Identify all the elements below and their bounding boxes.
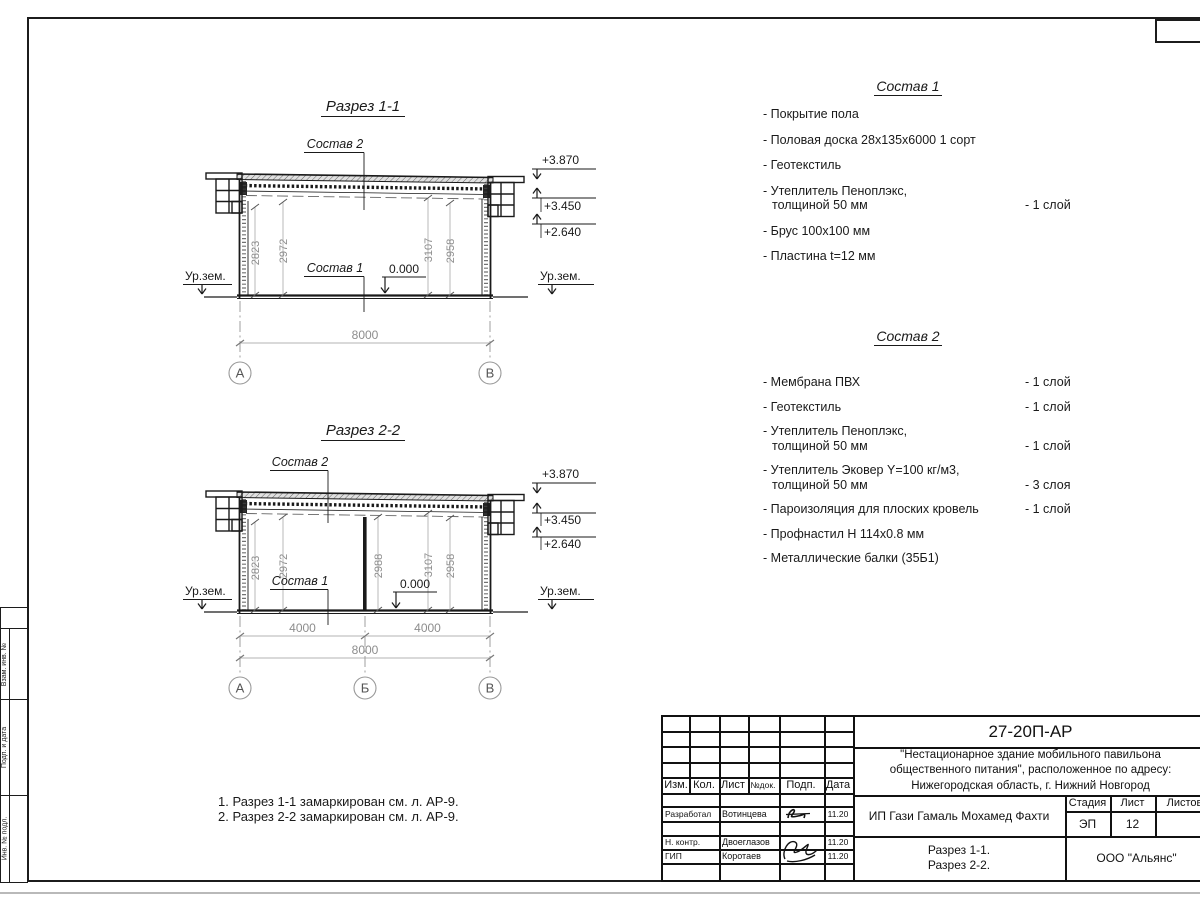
- left-strip-cell-vzam: Взам. инв. №: [0, 628, 28, 701]
- list-item: - Геотекстиль - 1 слой: [763, 400, 1123, 415]
- left-strip-divider: Взам. инв. №: [1, 629, 10, 700]
- elevation-arrow-up: [533, 188, 541, 198]
- paper-bottom-edge: [0, 892, 1200, 894]
- list-item: - Утеплитель Эковер Y=100 кг/м3,толщиной…: [763, 463, 1123, 492]
- axis-letter: Б: [361, 681, 370, 696]
- layer-count: - 1 слой: [1025, 439, 1071, 454]
- span-dim-value: 8000: [352, 643, 379, 657]
- col-header-podp: Подп.: [786, 779, 815, 791]
- signature-scribble: [782, 806, 824, 821]
- staff-name: Коротаев: [722, 851, 761, 861]
- list-item: - Пароизоляция для плоских кровель - 1 с…: [763, 502, 1123, 517]
- drawing-sheet: { "sheet": { "left_strip": { "cells": ["…: [0, 0, 1200, 900]
- roof-dotted-band: [240, 186, 490, 190]
- sostav2-label: Состав 2: [272, 455, 328, 469]
- list-item: - Половая доска 28х135х6000 1 сорт: [763, 133, 1123, 148]
- list-item: - Геотекстиль: [763, 158, 1123, 173]
- dim-value: 2988: [373, 554, 385, 578]
- sostav1-label: Состав 1: [272, 574, 328, 588]
- dim-value: 2958: [445, 554, 457, 578]
- staff-date: 11.20: [828, 837, 849, 847]
- zero-level-label: 0.000: [400, 577, 430, 591]
- elevation-arrow-up: [533, 527, 541, 537]
- composition1-title: Состав 1: [763, 78, 1053, 96]
- title-block: Изм. Кол. Лист №док. Подп. Дата Разработ…: [661, 715, 1200, 882]
- client-name: ИП Гази Гамаль Мохамед Фахти: [853, 795, 1065, 836]
- list-item: - Металлические балки (35Б1): [763, 551, 1123, 566]
- col-header-data: Дата: [826, 779, 850, 791]
- list-item: - Профнастил Н 114х0.8 мм: [763, 527, 1123, 542]
- sheet-background: Взам. инв. № Подп. и дата Инв. № подл. Р…: [0, 0, 1200, 900]
- elevation-arrow-down: [533, 169, 541, 179]
- list-item: - Покрытие пола: [763, 107, 1123, 122]
- axis-letter: А: [236, 366, 245, 381]
- ground-level-label-left: Ур.зем.: [185, 269, 226, 283]
- roof-dotted-band: [240, 504, 490, 508]
- span-dim-value: 8000: [352, 328, 379, 342]
- ground-level-label-right: Ур.зем.: [540, 269, 581, 283]
- layer-count: - 3 слоя: [1025, 478, 1070, 493]
- elevation-label: +3.450: [544, 513, 581, 527]
- signature-scribble: [777, 833, 825, 865]
- eave-bracket-right: [488, 495, 524, 535]
- col-header-sheets-total: Листов: [1167, 797, 1200, 809]
- left-strip-divider: Инв. № подл.: [1, 796, 10, 882]
- note-line: 2. Разрез 2-2 замаркирован см. л. АР-9.: [218, 810, 459, 825]
- col-header-stadia: Стадия: [1069, 797, 1107, 809]
- project-description: "Нестационарное здание мобильного павиль…: [853, 747, 1200, 795]
- ground-level-arrow-right: [548, 600, 556, 610]
- ground-level-arrow-right: [548, 285, 556, 295]
- ground-level-label-right: Ур.зем.: [540, 584, 581, 598]
- section-1-1-drawing: Разрез 1-1: [180, 80, 600, 400]
- layer-count: - 1 слой: [1025, 400, 1071, 415]
- ground-level-label-left: Ур.зем.: [185, 584, 226, 598]
- organization-name: ООО "Альянс": [1065, 836, 1200, 880]
- list-item: - Брус 100х100 мм: [763, 224, 1123, 239]
- elevation-label: +3.870: [542, 153, 579, 167]
- elevation-arrow-up: [533, 214, 541, 224]
- stadia-value: ЭП: [1079, 817, 1096, 831]
- layer-count: - 1 слой: [1025, 198, 1071, 213]
- left-strip-divider: Подп. и дата: [1, 700, 10, 795]
- left-strip-label: Взам. инв. №: [2, 642, 9, 685]
- composition1-list: - Покрытие пола - Половая доска 28х135х6…: [763, 107, 1123, 275]
- staff-role: Разработал: [665, 809, 711, 819]
- zero-level-arrow: [381, 277, 389, 293]
- dim-value: 2823: [250, 556, 262, 580]
- section-2-2-drawing: Разрез 2-2: [180, 420, 600, 720]
- zero-level-arrow: [392, 592, 400, 608]
- elevation-label: +2.640: [544, 225, 581, 239]
- elevation-label: +3.450: [544, 199, 581, 213]
- elevation-label: +2.640: [544, 537, 581, 551]
- dim-value: 2972: [278, 239, 290, 263]
- dim-value: 2958: [445, 239, 457, 263]
- staff-name: Двоеглазов: [722, 837, 770, 847]
- section-title: Разрез 1-1: [326, 98, 400, 115]
- ceiling-dashed-line: [246, 514, 484, 518]
- note-line: 1. Разрез 1-1 замаркирован см. л. АР-9.: [218, 795, 459, 810]
- col-header-sheet: Лист: [1121, 797, 1145, 809]
- col-header-list: Лист: [721, 779, 745, 791]
- notes: 1. Разрез 1-1 замаркирован см. л. АР-9. …: [218, 795, 459, 824]
- axis-letter: В: [486, 366, 495, 381]
- left-strip-cell-podp: Подп. и дата: [0, 699, 28, 796]
- sostav2-label: Состав 2: [307, 137, 363, 151]
- list-item: - Пластина t=12 мм: [763, 249, 1123, 264]
- staff-name: Вотинцева: [722, 809, 767, 819]
- dim-value: 3107: [423, 238, 435, 262]
- list-item: - Утеплитель Пеноплэкс,толщиной 50 мм - …: [763, 424, 1123, 453]
- left-strip-empty-cell: [0, 607, 28, 629]
- ground-level-arrow-left: [198, 600, 206, 610]
- dim-value: 2823: [250, 241, 262, 265]
- dim-value: 3107: [423, 553, 435, 577]
- sheet-number: 12: [1126, 817, 1139, 831]
- section-title: Разрез 2-2: [326, 422, 401, 439]
- sheet-title: Разрез 1-1. Разрез 2-2.: [853, 836, 1065, 880]
- top-right-stamp-box: [1155, 19, 1200, 43]
- col-header-kol: Кол.: [693, 779, 715, 791]
- sostav1-label: Состав 1: [307, 261, 363, 275]
- left-strip-label: Подп. и дата: [2, 727, 9, 768]
- bay-dim-value: 4000: [289, 621, 316, 635]
- composition2-title: Состав 2: [763, 328, 1053, 346]
- col-header-ndok: №док.: [751, 780, 776, 790]
- composition2-list: - Мембрана ПВХ - 1 слой - Геотекстиль - …: [763, 375, 1123, 576]
- staff-date: 11.20: [828, 809, 849, 819]
- doc-number: 27-20П-АР: [853, 717, 1200, 747]
- eave-bracket-left: [206, 173, 242, 213]
- eave-bracket-left: [206, 491, 242, 531]
- col-header-izm: Изм.: [664, 779, 688, 791]
- staff-role: ГИП: [665, 851, 682, 861]
- list-item: - Мембрана ПВХ - 1 слой: [763, 375, 1123, 390]
- bay-dim-value: 4000: [414, 621, 441, 635]
- left-strip-cell-inv: Инв. № подл.: [0, 795, 28, 883]
- axis-letter: В: [486, 681, 495, 696]
- left-strip-label: Инв. № подл.: [2, 817, 9, 861]
- ground-level-arrow-left: [198, 285, 206, 295]
- axis-letter: А: [236, 681, 245, 696]
- layer-count: - 1 слой: [1025, 375, 1071, 390]
- elevation-label: +3.870: [542, 467, 579, 481]
- ceiling-dashed-line: [246, 196, 484, 200]
- staff-date: 11.20: [828, 851, 849, 861]
- list-item: - Утеплитель Пеноплэкс,толщиной 50 мм - …: [763, 184, 1123, 213]
- elevation-arrow-up: [533, 503, 541, 513]
- middle-wall: [363, 517, 367, 610]
- elevation-arrow-down: [533, 483, 541, 493]
- staff-role: Н. контр.: [665, 837, 700, 847]
- layer-count: - 1 слой: [1025, 502, 1071, 517]
- eave-bracket-right: [488, 177, 524, 217]
- zero-level-label: 0.000: [389, 262, 419, 276]
